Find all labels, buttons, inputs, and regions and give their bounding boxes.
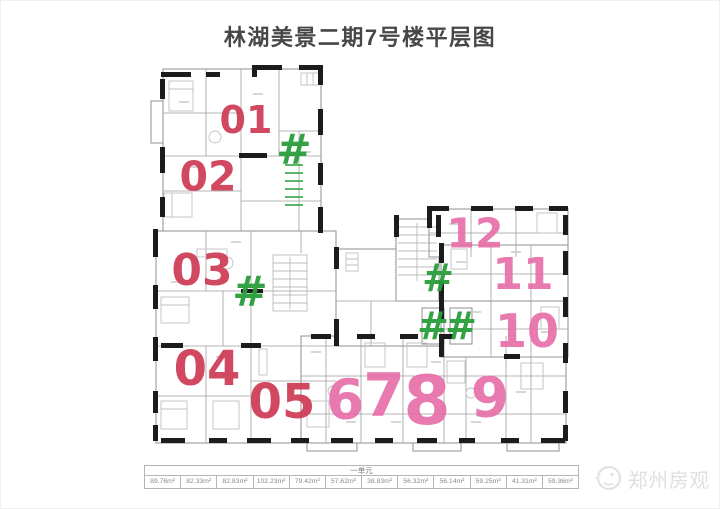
floor-plan-drawing	[1, 1, 720, 509]
area-table-unit-header: 一单元	[145, 466, 578, 476]
hash-mark-3: #	[422, 259, 454, 297]
area-cell: 79.42m²	[290, 476, 326, 488]
watermark-logo-icon	[592, 462, 624, 494]
unit-label-11: 11	[492, 253, 553, 297]
area-cell: 59.25m²	[471, 476, 507, 488]
unit-label-05: 05	[249, 378, 316, 426]
area-table-row: 89.76m² 82.33m² 82.83m² 102.23m² 79.42m²…	[145, 476, 578, 488]
floor-plan-page: 林湖美景二期7号楼平层图	[0, 0, 720, 509]
unit-label-01: 01	[220, 101, 273, 139]
watermark: 郑州房观	[592, 460, 710, 496]
hash-mark-2: #	[232, 271, 267, 313]
watermark-text: 郑州房观	[628, 464, 710, 493]
unit-label-02: 02	[179, 157, 236, 198]
area-cell: 102.23m²	[254, 476, 290, 488]
area-cell: 89.76m²	[145, 476, 181, 488]
area-cell: 82.33m²	[181, 476, 217, 488]
area-cell: 82.83m²	[217, 476, 253, 488]
area-cell: 56.32m²	[398, 476, 434, 488]
unit-label-8: 8	[403, 368, 450, 436]
hash-mark-5: #	[445, 307, 477, 345]
hash-mark-1: #	[276, 129, 311, 171]
area-cell: 41.31m²	[507, 476, 543, 488]
unit-label-10: 10	[495, 308, 559, 354]
area-cell: 38.83m²	[362, 476, 398, 488]
unit-label-03: 03	[171, 249, 232, 293]
unit-label-04: 04	[174, 345, 241, 393]
unit-label-12: 12	[446, 214, 503, 255]
area-cell: 59.36m²	[543, 476, 578, 488]
area-cell: 57.62m²	[326, 476, 362, 488]
area-cell: 56.14m²	[434, 476, 470, 488]
unit-label-9: 9	[471, 371, 509, 426]
unit-label-6: 6	[326, 373, 364, 428]
area-table: 一单元 89.76m² 82.33m² 82.83m² 102.23m² 79.…	[144, 465, 579, 489]
unit-label-7: 7	[363, 366, 405, 426]
